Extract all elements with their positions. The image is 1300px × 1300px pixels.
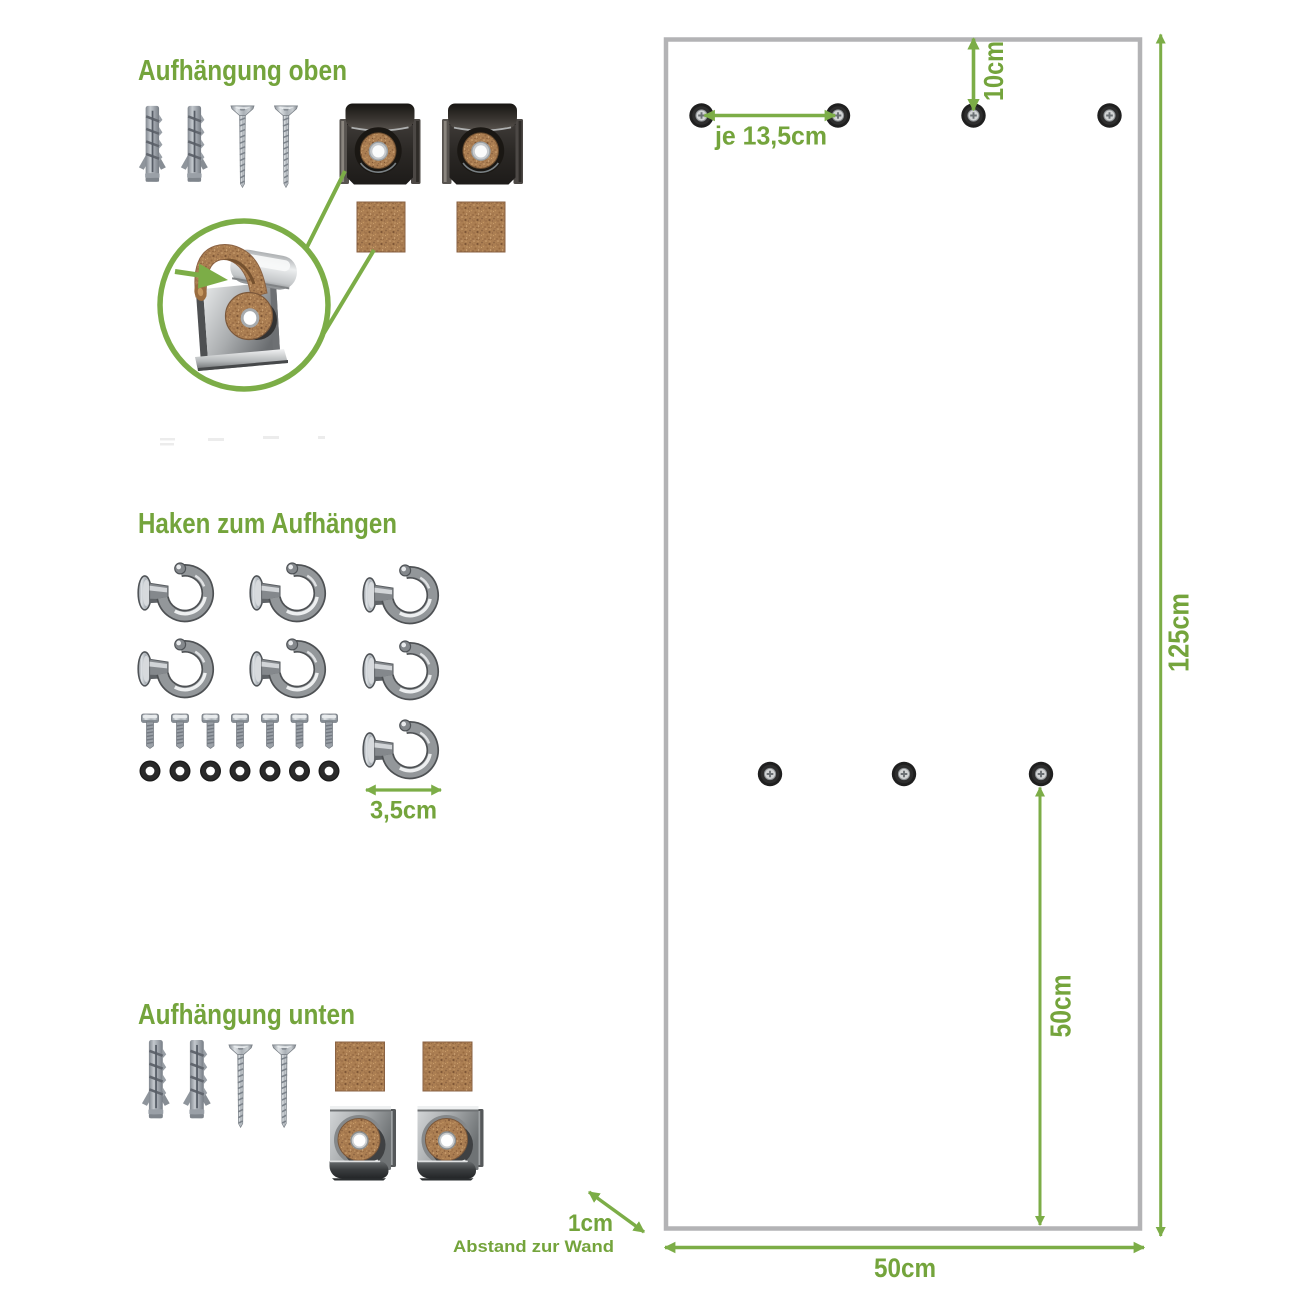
- svg-text:1cm: 1cm: [568, 1210, 613, 1237]
- svg-text:Abstand zur Wand: Abstand zur Wand: [453, 1237, 614, 1256]
- svg-text:50cm: 50cm: [874, 1253, 936, 1283]
- svg-text:Aufhängung unten: Aufhängung unten: [138, 999, 355, 1031]
- svg-text:3,5cm: 3,5cm: [370, 797, 437, 825]
- svg-text:Haken zum Aufhängen: Haken zum Aufhängen: [138, 508, 397, 540]
- svg-text:Aufhängung oben: Aufhängung oben: [138, 55, 347, 87]
- svg-text:50cm: 50cm: [1046, 975, 1078, 1038]
- svg-text:je 13,5cm: je 13,5cm: [714, 121, 827, 151]
- svg-text:125cm: 125cm: [1164, 593, 1196, 672]
- svg-text:10cm: 10cm: [978, 41, 1009, 101]
